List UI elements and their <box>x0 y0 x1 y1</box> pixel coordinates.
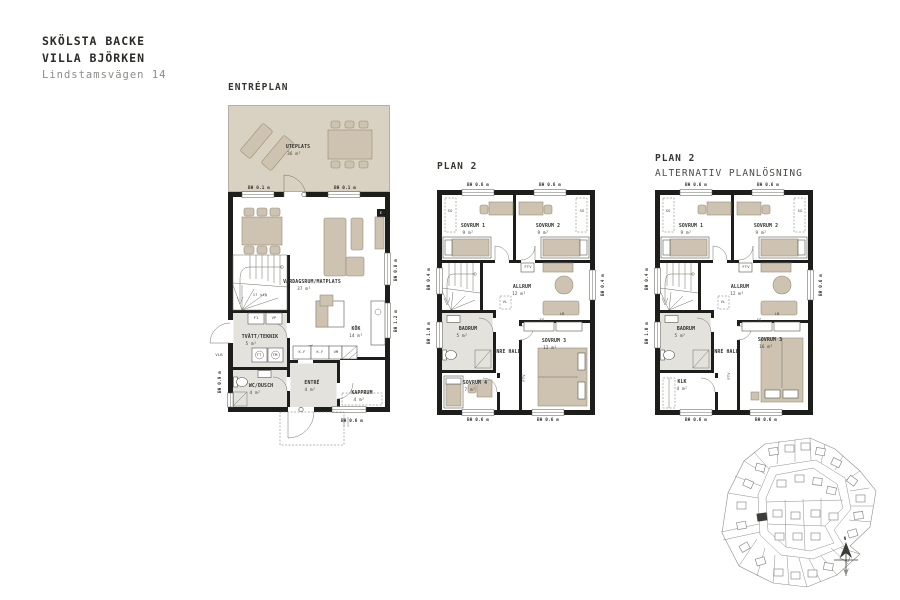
plan-text-label: TM <box>273 353 278 357</box>
plan-text-label: LB <box>775 312 780 316</box>
siteplan-map: N <box>712 436 884 594</box>
plan-text-label: SOVRUM 3 <box>542 339 566 344</box>
plan-text-label: BH 0.6 m <box>341 419 363 423</box>
plan-text-label: ENTRÉ <box>304 381 319 386</box>
plan-text-label: 12 m² <box>543 346 557 350</box>
plan-text-label: SG <box>540 318 545 322</box>
entreplan-drawing: UTEPLATS36 m²BH 0.1 mBH 0.1 mVARDAGSRUM/… <box>228 105 390 450</box>
plan-text-label: 36 m² <box>287 152 301 156</box>
stairs <box>660 263 698 310</box>
plan-text-label: 12 m² <box>512 292 526 296</box>
plan-text-label: K.F <box>299 350 306 354</box>
allrum-furniture <box>718 263 797 315</box>
plan-text-label: FTV <box>524 265 531 269</box>
plan-text-label: TT <box>257 353 262 357</box>
plan-text-label: ALLRUM <box>513 285 531 290</box>
plan-text-label: BH 1.0 m <box>645 322 649 344</box>
plan-text-label: SG <box>798 209 803 213</box>
plan-text-label: F1 <box>254 316 259 320</box>
plan-text-label: KAPPRUM <box>351 391 372 396</box>
plan-text-label: 4 m² <box>250 391 261 395</box>
plan-text-label: BH 0.6 m <box>685 418 707 422</box>
plan-text-label: BH 0.4 m <box>427 268 431 290</box>
entreplan-title: ENTRÉPLAN <box>228 82 288 93</box>
plan-text-label: SOVRUM 1 <box>461 224 485 229</box>
plan-text-label: INRE HALL <box>493 350 520 355</box>
plan-text-label: SG <box>448 209 453 213</box>
plan-text-label: KLK <box>677 380 686 385</box>
plan-text-label: 5 m² <box>457 334 468 338</box>
kitchen-fixtures <box>293 301 385 359</box>
plan-text-label: SOVRUM 3 <box>758 338 782 343</box>
plan-text-label: BH 0.1 m <box>248 186 270 190</box>
plan-text-label: 9 m² <box>681 231 692 235</box>
plan-text-label: VL <box>503 300 508 304</box>
plan-text-label: FTV <box>742 265 749 269</box>
plan-text-label: UM <box>334 350 339 354</box>
plan-text-label: E <box>380 211 382 215</box>
plan2alt-drawing: BH 0.6 mBH 0.6 mSGSGSOVRUM 19 m²SOVRUM 2… <box>655 190 813 415</box>
address-line: Lindstamsvägen 14 <box>42 69 166 81</box>
plan-text-label: LB <box>560 312 565 316</box>
highlighted-lot <box>756 512 767 521</box>
stairs <box>442 263 480 310</box>
plan-text-label: VLB <box>215 353 222 357</box>
plan2alt-subtitle: ALTERNATIV PLANLÖSNING <box>655 168 803 179</box>
plan-text-label: INRE HALL <box>711 350 738 355</box>
plan-text-label: 12 m² <box>730 292 744 296</box>
plan-text-label: 9 m² <box>538 231 549 235</box>
plan2-drawing: BH 0.6 mBH 0.6 mSGSGSOVRUM 19 m²SOVRUM 2… <box>437 190 595 415</box>
plan-text-label: BH 1.2 m <box>394 310 398 332</box>
entreplan-svg <box>228 105 390 450</box>
project-title: SKÖLSTA BACKE <box>42 34 145 48</box>
plan-text-label: SOVRUM 2 <box>536 224 560 229</box>
plan-text-label: 5 m² <box>675 334 686 338</box>
plan-text-label: TVÄTT/TEKNIK <box>242 335 278 340</box>
plan-text-label: 4 m² <box>354 398 365 402</box>
plan-text-label: 5 m² <box>246 342 257 346</box>
plan-text-label: BH 0.6 m <box>685 183 707 187</box>
plan-text-label: SG <box>666 209 671 213</box>
plan-text-label: 14 m² <box>349 334 363 338</box>
plan-text-label: BH 0.6 m <box>467 418 489 422</box>
plan-text-label: N <box>844 537 847 541</box>
plan-text-label: ALLRUM <box>731 285 749 290</box>
plan-text-label: BH 0.8 m <box>394 259 398 281</box>
plan-text-label: SOVRUM 1 <box>679 224 703 229</box>
plan-text-label: 16 m² <box>759 345 773 349</box>
plan-text-label: BH 0.6 m <box>757 183 779 187</box>
plan-text-label: VARDAGSRUM/MATPLATS <box>283 280 341 285</box>
plan-text-label: BH 0.6 m <box>539 183 561 187</box>
plan-text-label: BH 0.9 m <box>218 371 222 393</box>
plan-text-label: 4 m² <box>305 388 316 392</box>
plan-text-label: FTV <box>522 374 526 381</box>
plan-text-label: VL <box>721 300 726 304</box>
plan-text-label: BH 1.0 m <box>427 322 431 344</box>
plan-text-label: 17 stg <box>253 293 268 297</box>
siteplan-svg <box>712 436 884 594</box>
plan2-title: PLAN 2 <box>437 161 477 172</box>
terrace-dining-set <box>328 121 372 168</box>
floorplan-sheet: { "header": { "project": "SKÖLSTA BACKE"… <box>0 0 900 600</box>
plan-text-label: BH 0.1 m <box>334 186 356 190</box>
plan-text-label: SG <box>580 209 585 213</box>
plan-text-label: KÖK <box>351 327 360 332</box>
plan-text-label: 9 m² <box>463 231 474 235</box>
plan-text-label: BADRUM <box>677 327 695 332</box>
plan-text-label: SOVRUM 4 <box>463 381 487 386</box>
plan-text-label: BH 0.4 m <box>601 274 605 296</box>
plan-text-label: 37 m² <box>297 287 311 291</box>
closets <box>742 322 800 331</box>
plan-text-label: FTV <box>727 372 731 379</box>
plan-text-label: 7 m² <box>465 388 476 392</box>
klk-fixtures <box>663 378 675 408</box>
plan-text-label: 9 m² <box>756 231 767 235</box>
stairs <box>233 255 287 310</box>
plan-text-label: SG <box>757 318 762 322</box>
plan-text-label: BH 0.4 m <box>645 268 649 290</box>
plan-text-label: VP <box>272 316 277 320</box>
closets <box>524 322 582 331</box>
plan-text-label: BH 0.6 m <box>819 274 823 296</box>
sovrum3-furniture <box>538 348 587 406</box>
plan-text-label: WC/DUSCH <box>249 384 273 389</box>
plan-text-label: BH 0.6 m <box>537 418 559 422</box>
plan-text-label: UTEPLATS <box>286 145 310 150</box>
plan2alt-title: PLAN 2 <box>655 153 695 164</box>
plan-text-label: SOVRUM 2 <box>754 224 778 229</box>
livingroom-furniture <box>242 208 384 306</box>
plan-text-label: BH 0.6 m <box>755 418 777 422</box>
plan-text-label: BADRUM <box>459 327 477 332</box>
plan-text-label: BH 0.6 m <box>467 183 489 187</box>
plan-text-label: K.F <box>317 350 324 354</box>
allrum-furniture <box>500 263 579 315</box>
plan-text-label: 4 m² <box>677 387 688 391</box>
house-model-title: VILLA BJÖRKEN <box>42 51 145 65</box>
